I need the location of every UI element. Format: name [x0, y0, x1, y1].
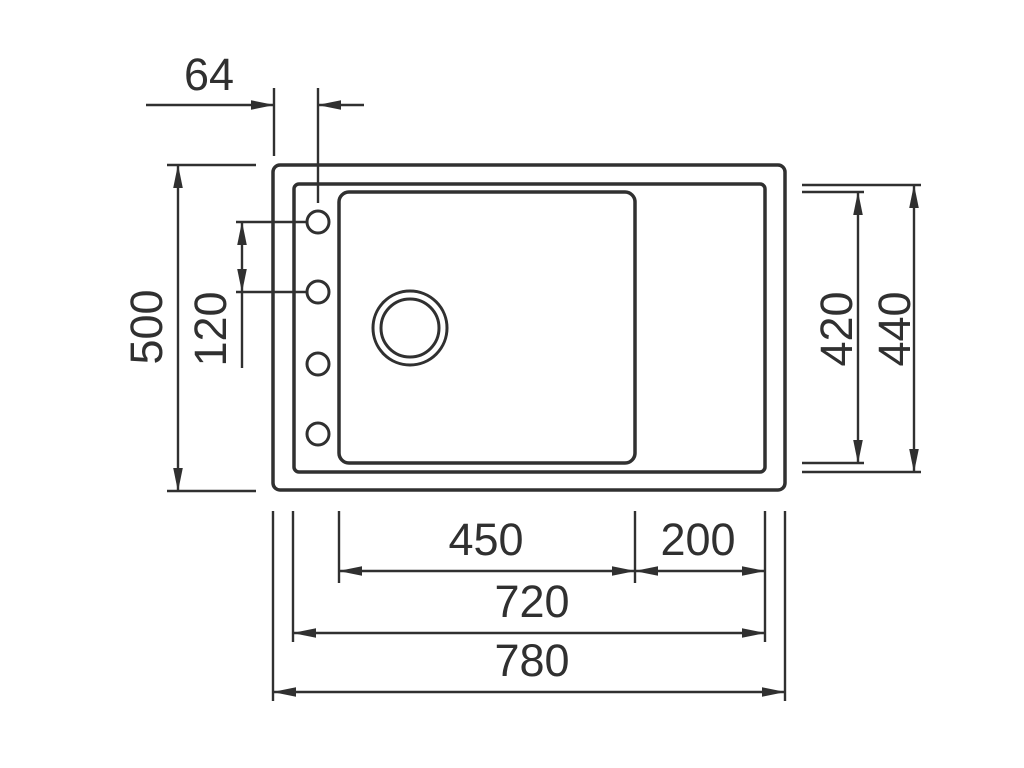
label-bowl-inner-depth: 420: [811, 291, 862, 366]
label-bowl-width: 450: [448, 514, 523, 565]
tap-hole-4: [307, 423, 329, 445]
label-tap-hole-offset: 64: [184, 49, 234, 100]
drain-hole-outer: [373, 291, 447, 365]
drawing-canvas: 64 500 120 420 440 450 200 720 780: [0, 0, 1024, 768]
label-rim-inner-width: 720: [494, 576, 569, 627]
tap-hole-3: [307, 353, 329, 375]
sink-rim: [294, 184, 765, 472]
drain-hole-inner: [381, 299, 439, 357]
label-overall-width: 780: [494, 635, 569, 686]
label-overall-depth: 500: [121, 289, 172, 364]
sink-outer-edge: [273, 165, 785, 490]
sink-bowl: [339, 192, 635, 463]
tap-hole-2: [307, 281, 329, 303]
sink-dimension-drawing: 64 500 120 420 440 450 200 720 780: [0, 0, 1024, 768]
tap-hole-1: [307, 211, 329, 233]
sink-plan: [273, 165, 785, 490]
label-drainer-width: 200: [660, 514, 735, 565]
label-rim-inner-depth: 440: [869, 291, 920, 366]
label-tap-hole-spacing: 120: [185, 291, 236, 366]
